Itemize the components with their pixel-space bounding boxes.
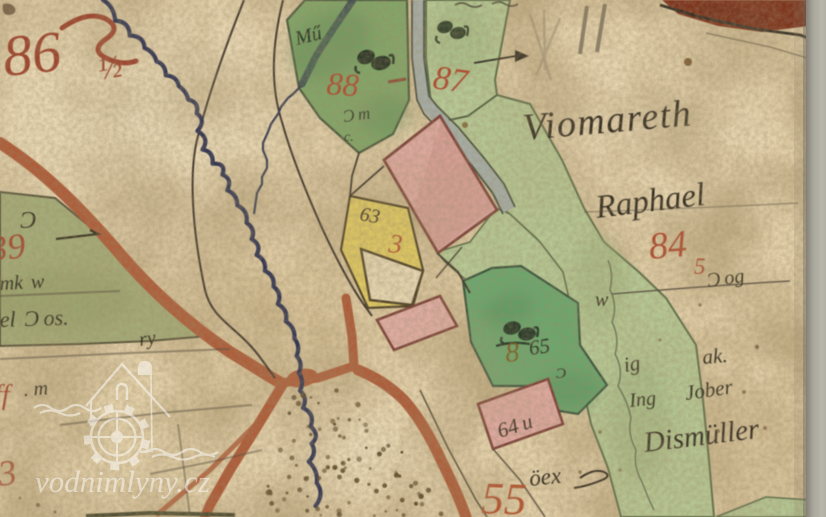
svg-text:vodnimlyny.cz: vodnimlyny.cz [35,464,210,499]
